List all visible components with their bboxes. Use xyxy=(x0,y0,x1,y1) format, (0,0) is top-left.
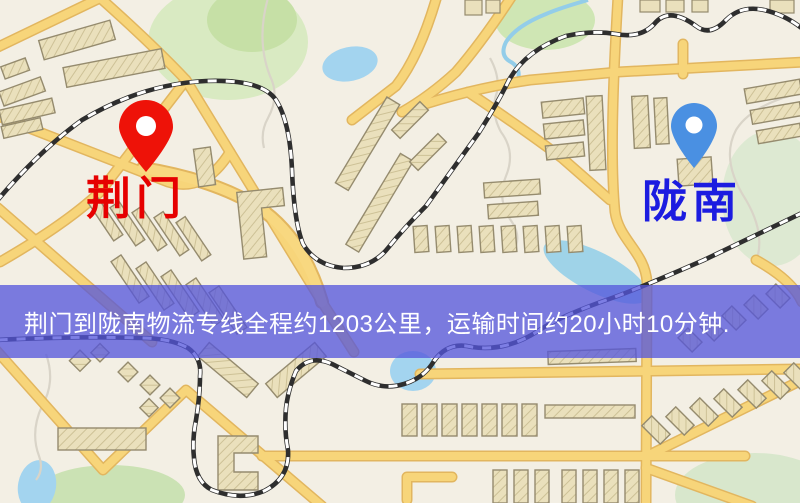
route-info-banner: 荆门到陇南物流专线全程约1203公里，运输时间约20小时10分钟. xyxy=(0,285,800,358)
origin-city-label: 荆门 xyxy=(86,176,186,221)
route-info-text: 荆门到陇南物流专线全程约1203公里，运输时间约20小时10分钟. xyxy=(0,304,730,339)
destination-city-label: 陇南 xyxy=(642,179,742,224)
base-map xyxy=(0,0,800,503)
map-canvas: 荆门 陇南 荆门到陇南物流专线全程约1203公里，运输时间约20小时10分钟. xyxy=(0,0,800,503)
